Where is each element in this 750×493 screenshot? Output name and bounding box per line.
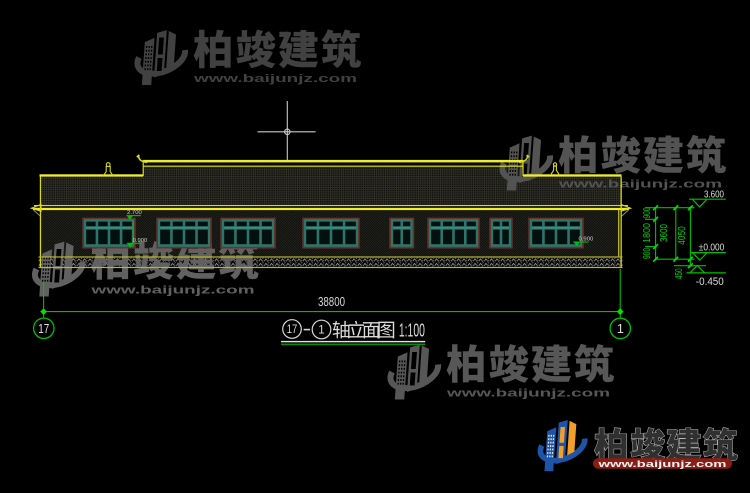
svg-text:1800: 1800 xyxy=(642,223,653,243)
svg-text:38800: 38800 xyxy=(318,295,345,309)
svg-text:17: 17 xyxy=(38,322,49,336)
svg-text:www.baijunjz.com: www.baijunjz.com xyxy=(90,285,255,297)
svg-text:0.900: 0.900 xyxy=(579,236,594,242)
svg-text:3.600: 3.600 xyxy=(704,189,724,201)
svg-text:www.baijunjz.com: www.baijunjz.com xyxy=(192,73,357,85)
svg-text:4050: 4050 xyxy=(677,226,688,245)
svg-text:3600: 3600 xyxy=(659,224,670,242)
svg-text:900: 900 xyxy=(642,248,653,259)
svg-text:1: 1 xyxy=(617,322,624,336)
svg-text:900: 900 xyxy=(642,207,653,218)
svg-text:±0.000: ±0.000 xyxy=(699,242,725,254)
svg-text:www.baijunjz.com: www.baijunjz.com xyxy=(597,459,727,470)
svg-text:450: 450 xyxy=(674,268,685,279)
svg-text:1:100: 1:100 xyxy=(399,319,425,340)
svg-text:1: 1 xyxy=(318,325,324,337)
svg-text:17: 17 xyxy=(287,322,298,336)
svg-text:www.baijunjz.com: www.baijunjz.com xyxy=(445,388,610,400)
svg-text:www.baijunjz.com: www.baijunjz.com xyxy=(557,179,722,191)
svg-text:-0.450: -0.450 xyxy=(696,276,724,288)
